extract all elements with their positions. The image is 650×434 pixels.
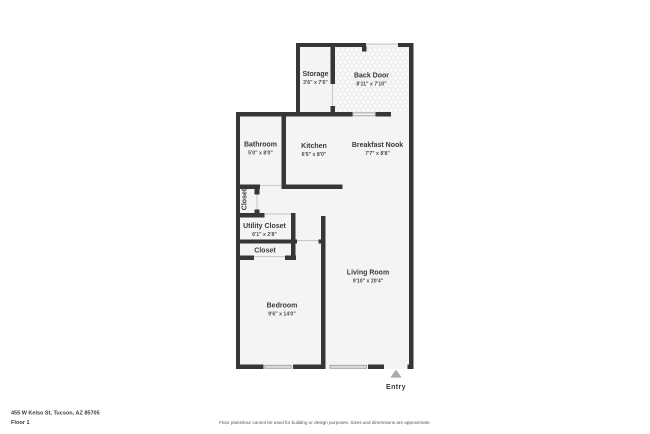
svg-text:Back Door: Back Door [354, 73, 389, 80]
svg-text:6'5" x 8'0": 6'5" x 8'0" [302, 152, 327, 158]
svg-text:Bathroom: Bathroom [244, 142, 277, 149]
svg-text:7'7" x 8'8": 7'7" x 8'8" [365, 151, 390, 157]
svg-text:Living Room: Living Room [347, 270, 389, 277]
svg-text:Floor plans/tour cannot be use: Floor plans/tour cannot be used for buil… [219, 420, 431, 425]
svg-text:455 W Kelso St, Tucson, AZ 857: 455 W Kelso St, Tucson, AZ 85705 [11, 411, 100, 417]
svg-text:3'6" x 7'6": 3'6" x 7'6" [303, 80, 328, 86]
svg-text:Kitchen: Kitchen [301, 143, 327, 150]
svg-text:6'1" x 2'8": 6'1" x 2'8" [252, 232, 277, 238]
svg-text:8'11" x 7'10": 8'11" x 7'10" [356, 82, 387, 88]
svg-text:9'6" x 14'0": 9'6" x 14'0" [268, 312, 296, 318]
svg-text:Storage: Storage [302, 71, 328, 78]
svg-text:Closet: Closet [254, 248, 276, 255]
svg-text:Entry: Entry [386, 384, 406, 391]
svg-text:Floor 1: Floor 1 [11, 420, 30, 426]
svg-text:Closet: Closet [242, 188, 249, 210]
svg-text:Bedroom: Bedroom [267, 303, 298, 310]
svg-text:9'10" x 20'4": 9'10" x 20'4" [353, 279, 384, 285]
svg-text:5'0" x 8'0": 5'0" x 8'0" [248, 151, 273, 157]
svg-text:Utility Closet: Utility Closet [243, 223, 286, 230]
svg-text:Breakfast Nook: Breakfast Nook [352, 142, 403, 149]
